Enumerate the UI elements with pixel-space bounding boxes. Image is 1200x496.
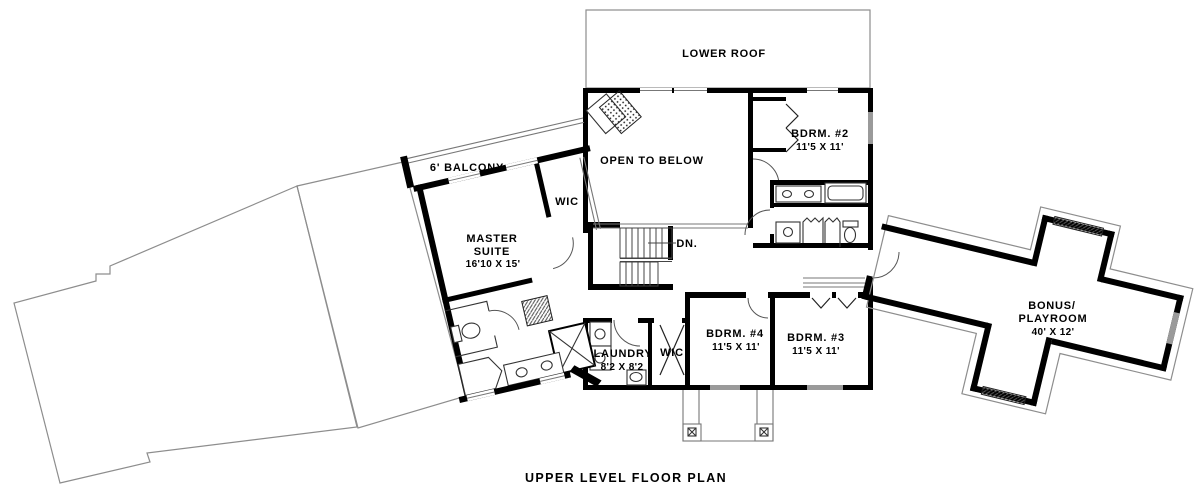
stairs-dn-label: DN. — [676, 238, 697, 250]
floor-plan-canvas: LOWER ROOF OPEN TO BELOW 6' BALCONY WIC … — [0, 0, 1200, 496]
master-suite-dims: 16'10 X 15' — [466, 259, 521, 270]
vanity — [776, 222, 800, 243]
staircase — [588, 226, 676, 290]
bdrm4-door-arc — [748, 298, 768, 318]
shower2 — [825, 218, 840, 247]
master-suite-label-1: MASTER — [466, 233, 517, 245]
master-wic — [529, 153, 606, 269]
toilet-tank — [843, 221, 858, 227]
bdrm2-label: BDRM. #2 — [791, 128, 849, 140]
floor-plan-drawing: LOWER ROOF OPEN TO BELOW 6' BALCONY WIC … — [0, 0, 1200, 496]
porch-post — [755, 424, 773, 441]
bdrm4-dims: 11'5 X 11' — [712, 342, 760, 353]
bonus-dims: 40' X 12' — [1032, 327, 1075, 338]
laundry-door-arc — [614, 320, 640, 346]
bonus-door-gap — [868, 250, 873, 278]
bonus-label-2: PLAYROOM — [1019, 313, 1088, 325]
linen-closet — [522, 296, 553, 326]
open-to-below-label: OPEN TO BELOW — [600, 155, 704, 167]
plan-title: UPPER LEVEL FLOOR PLAN — [525, 471, 727, 485]
hall-wic-label: WIC — [660, 347, 684, 359]
toilet-door-arc — [489, 305, 519, 335]
balcony-label: 6' BALCONY — [430, 162, 504, 174]
bonus-east-window — [1166, 312, 1179, 345]
mid-roof-outline — [297, 162, 466, 428]
toilet-icon — [845, 228, 856, 243]
labels: LOWER ROOF OPEN TO BELOW 6' BALCONY WIC … — [430, 48, 1088, 485]
dormer-window — [1053, 217, 1103, 236]
porch — [683, 390, 773, 441]
bonus-wing — [845, 171, 1200, 440]
laundry-label: LAUNDRY — [594, 348, 653, 360]
dormer-window — [981, 386, 1026, 404]
bdrm3-label: BDRM. #3 — [787, 332, 845, 344]
bdrm3-window — [807, 385, 843, 390]
bdrm3-dims: 11'5 X 11' — [792, 346, 840, 357]
toilet-icon — [461, 321, 482, 340]
balcony-end-wall — [400, 156, 414, 189]
shower — [803, 218, 823, 243]
bdrm4-window — [710, 385, 740, 390]
bonus-label-1: BONUS/ — [1028, 300, 1076, 312]
bdrm2-closet — [753, 97, 798, 152]
bdrm2-window — [868, 112, 873, 144]
washer-icon — [590, 322, 611, 346]
wic-door-arc — [547, 237, 578, 268]
suite-south-wall — [442, 278, 533, 304]
master-wic-label: WIC — [555, 196, 579, 208]
bdrm2-dims: 11'5 X 11' — [796, 142, 844, 153]
bdrm4-label: BDRM. #4 — [706, 328, 764, 340]
lower-roof-label: LOWER ROOF — [682, 48, 766, 60]
lower-roof-outlines — [14, 10, 870, 483]
porch-post — [683, 424, 701, 441]
bonus-top-dormer — [1031, 214, 1115, 283]
master-suite-label-2: SUITE — [474, 246, 510, 258]
laundry-dims: 8'2 X 8'2 — [601, 362, 644, 373]
left-roof-outline — [14, 186, 357, 483]
bathrooms — [745, 180, 868, 248]
chimney — [586, 86, 641, 141]
